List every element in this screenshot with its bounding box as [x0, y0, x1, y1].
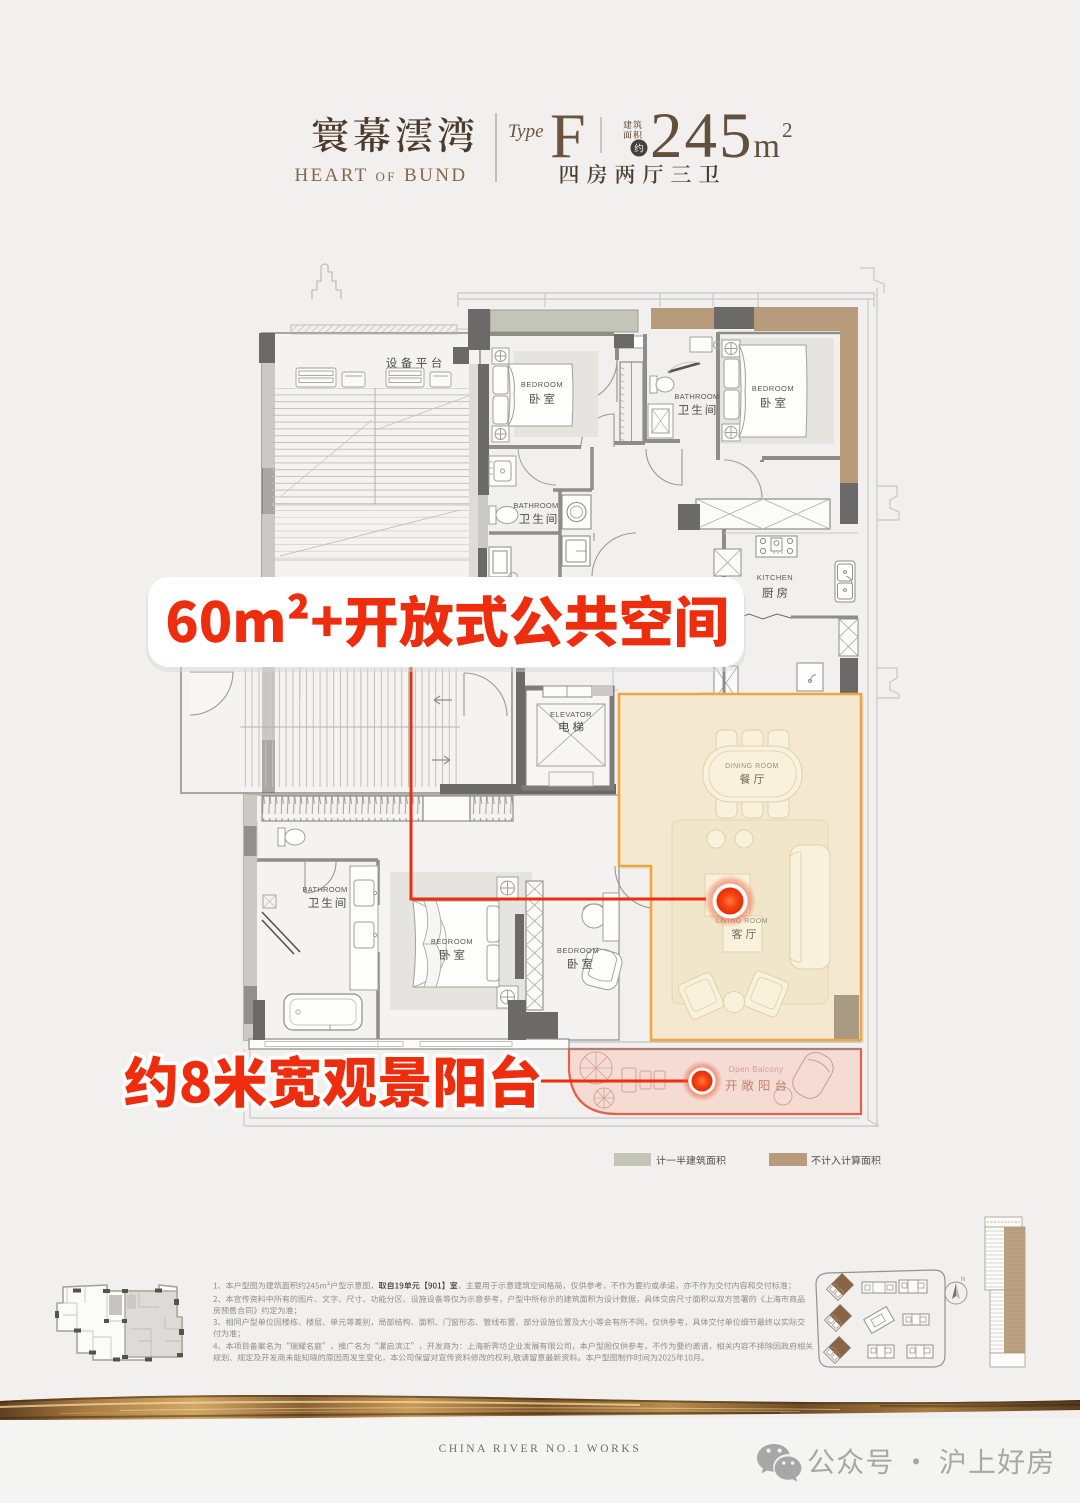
- svg-text:N: N: [961, 1277, 965, 1283]
- svg-text:CHINA RIVER NO.1 WORKS: CHINA RIVER NO.1 WORKS: [439, 1443, 642, 1455]
